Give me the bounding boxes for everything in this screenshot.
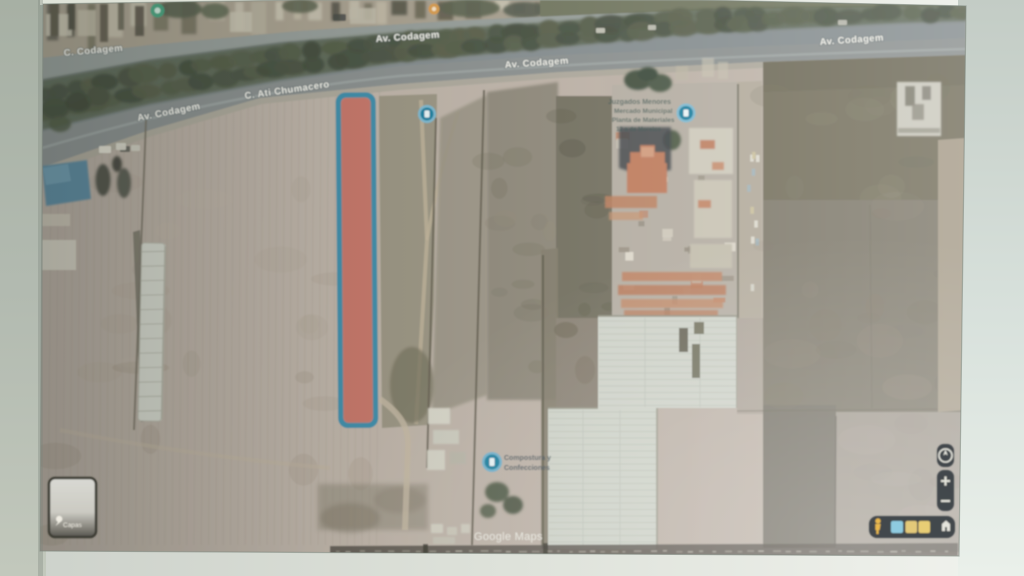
- svg-text:Capas: Capas: [63, 522, 83, 529]
